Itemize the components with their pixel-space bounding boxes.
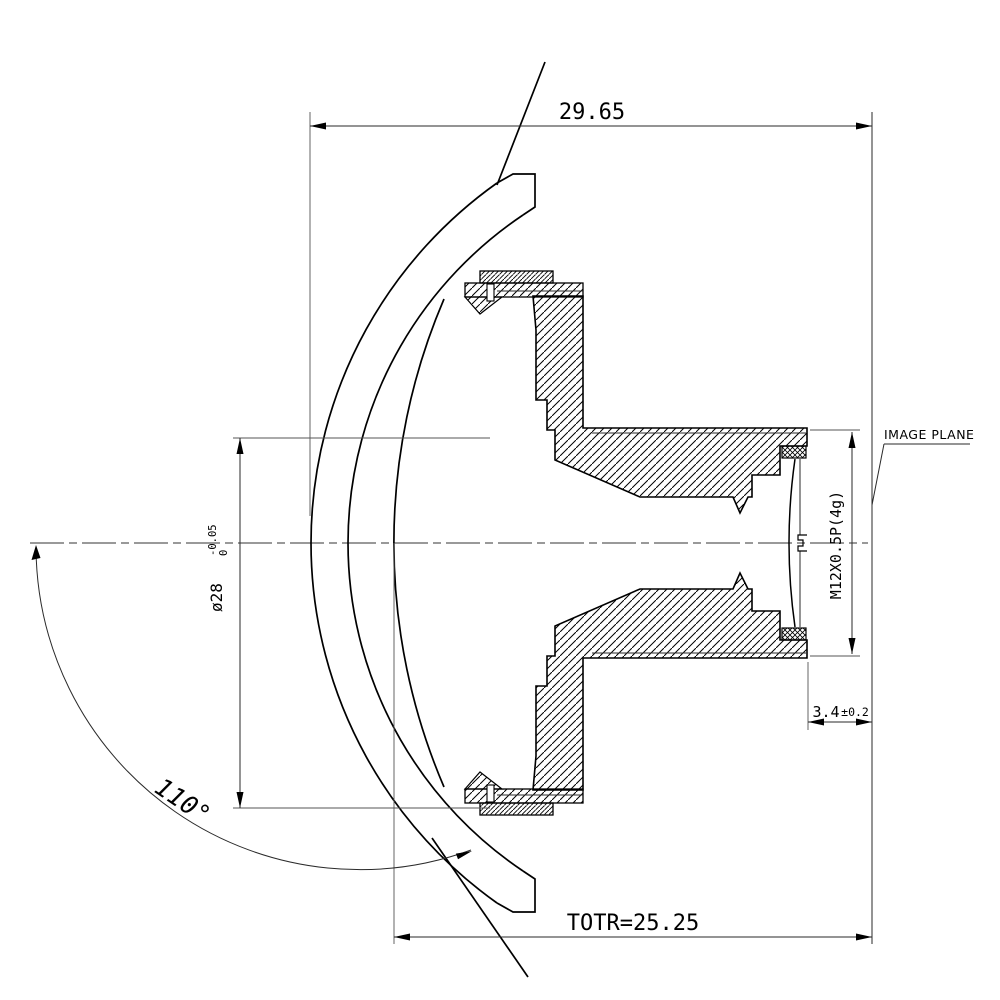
dim-arrow: [32, 545, 41, 560]
front-retainer-knurl-upper: [480, 271, 553, 283]
retainer-slot-upper: [487, 284, 494, 301]
image-plane-label: IMAGE PLANE: [884, 427, 974, 442]
dim-diameter: ø28 0 -0.05: [207, 438, 490, 808]
dim-arrow: [237, 438, 244, 454]
rear-retainer-lower: [782, 628, 806, 640]
dim-arrow: [856, 123, 872, 130]
dim-arrow: [310, 123, 326, 130]
rear-retainer-upper: [782, 446, 806, 458]
fov-ray-upper: [497, 62, 545, 185]
dim-totr-text: TOTR=25.25: [567, 911, 699, 936]
lens-technical-drawing: 29.65 TOTR=25.25 ø28 0 -0.05 M12X0.5P(4g…: [0, 0, 1000, 1000]
fov-arc: [36, 548, 471, 870]
dim-back-focus-text: 3.4: [812, 703, 839, 721]
dim-arrow: [856, 719, 872, 726]
dim-total-length-text: 29.65: [559, 100, 625, 125]
dim-back-focus: 3.4 ±0.2: [808, 662, 872, 730]
lens-rim-bottom: [497, 871, 535, 912]
retainer-slot-lower: [487, 785, 494, 802]
dim-thread-text: M12X0.5P(4g): [827, 491, 845, 599]
dim-arrow: [856, 934, 872, 941]
lens-section-canvas: 29.65 TOTR=25.25 ø28 0 -0.05 M12X0.5P(4g…: [0, 0, 1000, 1000]
dim-arrow: [237, 792, 244, 808]
fov-ray-lower: [432, 838, 528, 977]
dim-fov-angle-text: 110°: [150, 772, 216, 830]
housing-section-upper: [533, 296, 807, 513]
housing-section-lower: [533, 573, 807, 790]
dim-diameter-tol-lower: -0.05: [207, 524, 219, 556]
front-retainer-band-upper: [465, 283, 583, 297]
leader-line: [872, 444, 884, 505]
dim-arrow: [849, 638, 856, 654]
dim-back-focus-tol-text: ±0.2: [841, 705, 869, 719]
lens-rim-top: [497, 174, 535, 215]
image-plane: IMAGE PLANE: [872, 112, 974, 944]
front-retainer-band-lower: [465, 789, 583, 803]
dim-diameter-tol-upper: 0: [218, 550, 230, 556]
dim-diameter-text: ø28: [207, 583, 226, 612]
dim-arrow: [849, 432, 856, 448]
dim-fov-angle: 110°: [32, 545, 473, 870]
dim-arrow: [394, 934, 410, 941]
front-retainer-wedge-lower: [465, 772, 502, 789]
front-retainer-wedge-upper: [465, 297, 502, 314]
front-retainer-knurl-lower: [480, 803, 553, 815]
